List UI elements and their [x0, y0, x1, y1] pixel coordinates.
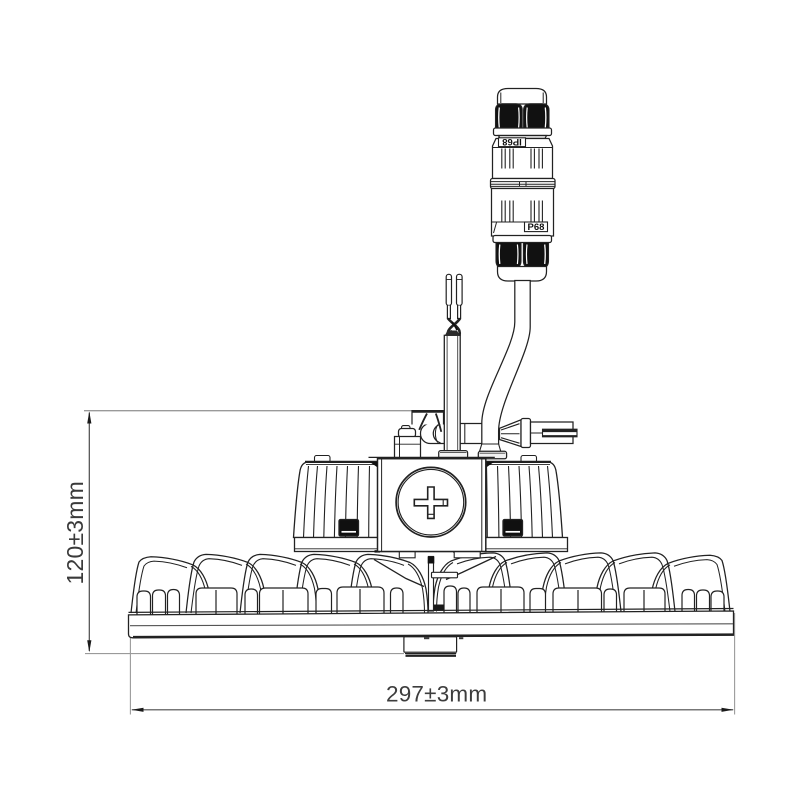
- svg-text:120±3mm: 120±3mm: [62, 481, 88, 585]
- svg-text:IP68: IP68: [502, 136, 522, 147]
- svg-text:P68: P68: [528, 222, 545, 233]
- svg-text:297±3mm: 297±3mm: [386, 682, 487, 707]
